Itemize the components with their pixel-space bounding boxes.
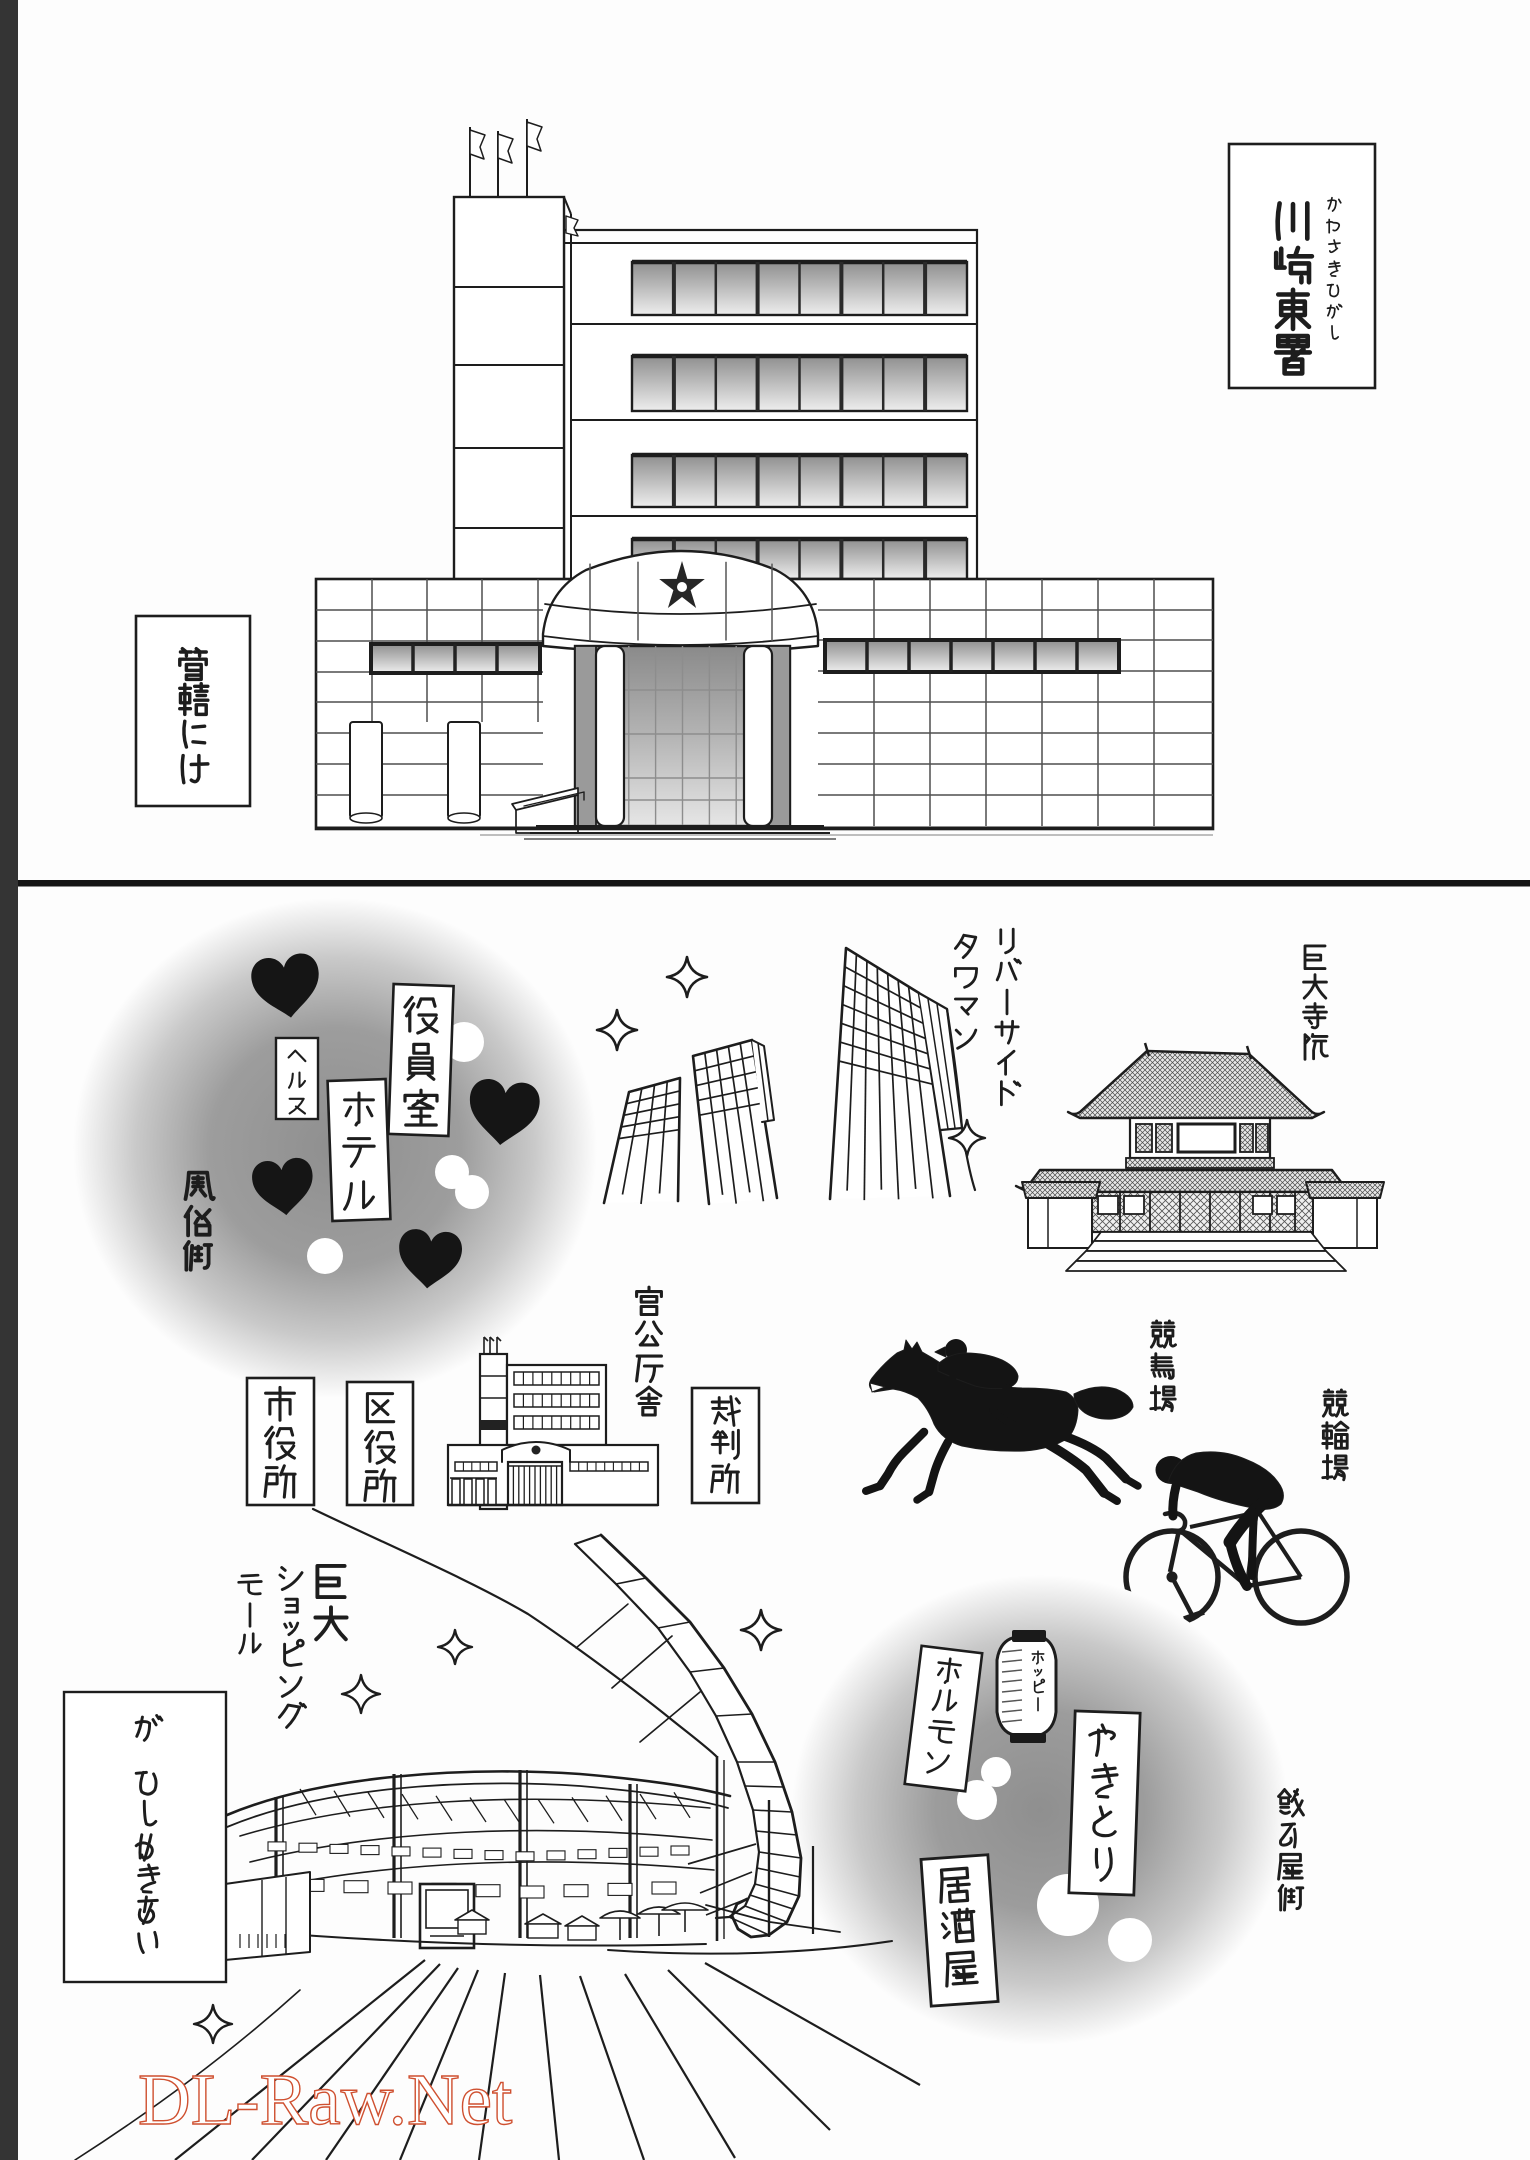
svg-text:DL-Raw.Net: DL-Raw.Net: [138, 2059, 512, 2140]
